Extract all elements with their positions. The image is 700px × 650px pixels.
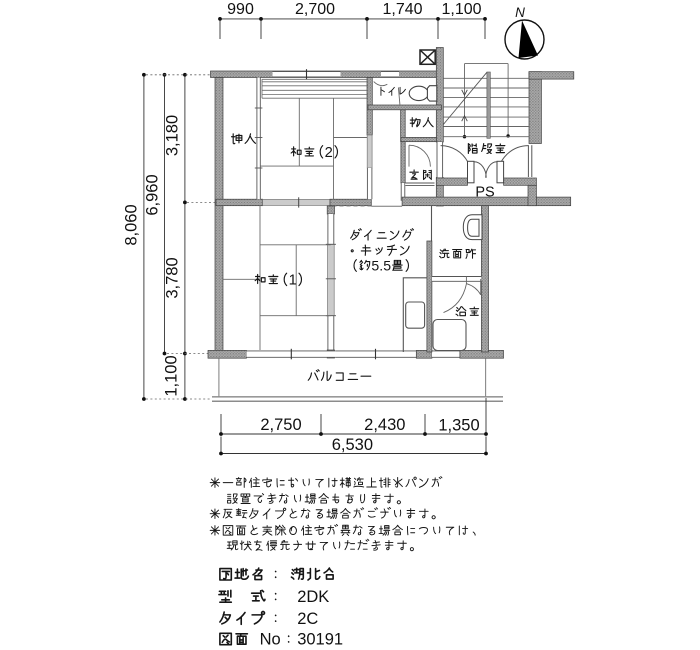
svg-text:2,700: 2,700 [295,1,335,18]
svg-text:5: 5 [383,258,391,274]
svg-text:1,740: 1,740 [382,1,422,18]
svg-text:2,430: 2,430 [364,416,405,434]
svg-text:8,060: 8,060 [123,204,141,245]
svg-text:3,180: 3,180 [164,115,182,156]
svg-text:2C: 2C [297,610,318,628]
svg-text:6,960: 6,960 [143,174,161,215]
svg-text:990: 990 [227,1,254,18]
svg-text:6,530: 6,530 [332,436,373,454]
svg-text:2,750: 2,750 [260,416,301,434]
svg-text:N: N [515,5,525,20]
svg-text:2DK: 2DK [297,588,329,606]
svg-text:No: No [260,631,281,649]
svg-text:1,100: 1,100 [441,1,481,18]
svg-text:5: 5 [371,258,379,274]
svg-text:1,350: 1,350 [438,417,479,435]
svg-text:PS: PS [475,184,494,200]
svg-text:1,100: 1,100 [163,355,181,396]
svg-text:3,780: 3,780 [164,257,182,298]
svg-text:1: 1 [289,273,297,289]
svg-text:30191: 30191 [297,631,343,649]
svg-text:2: 2 [325,145,333,161]
